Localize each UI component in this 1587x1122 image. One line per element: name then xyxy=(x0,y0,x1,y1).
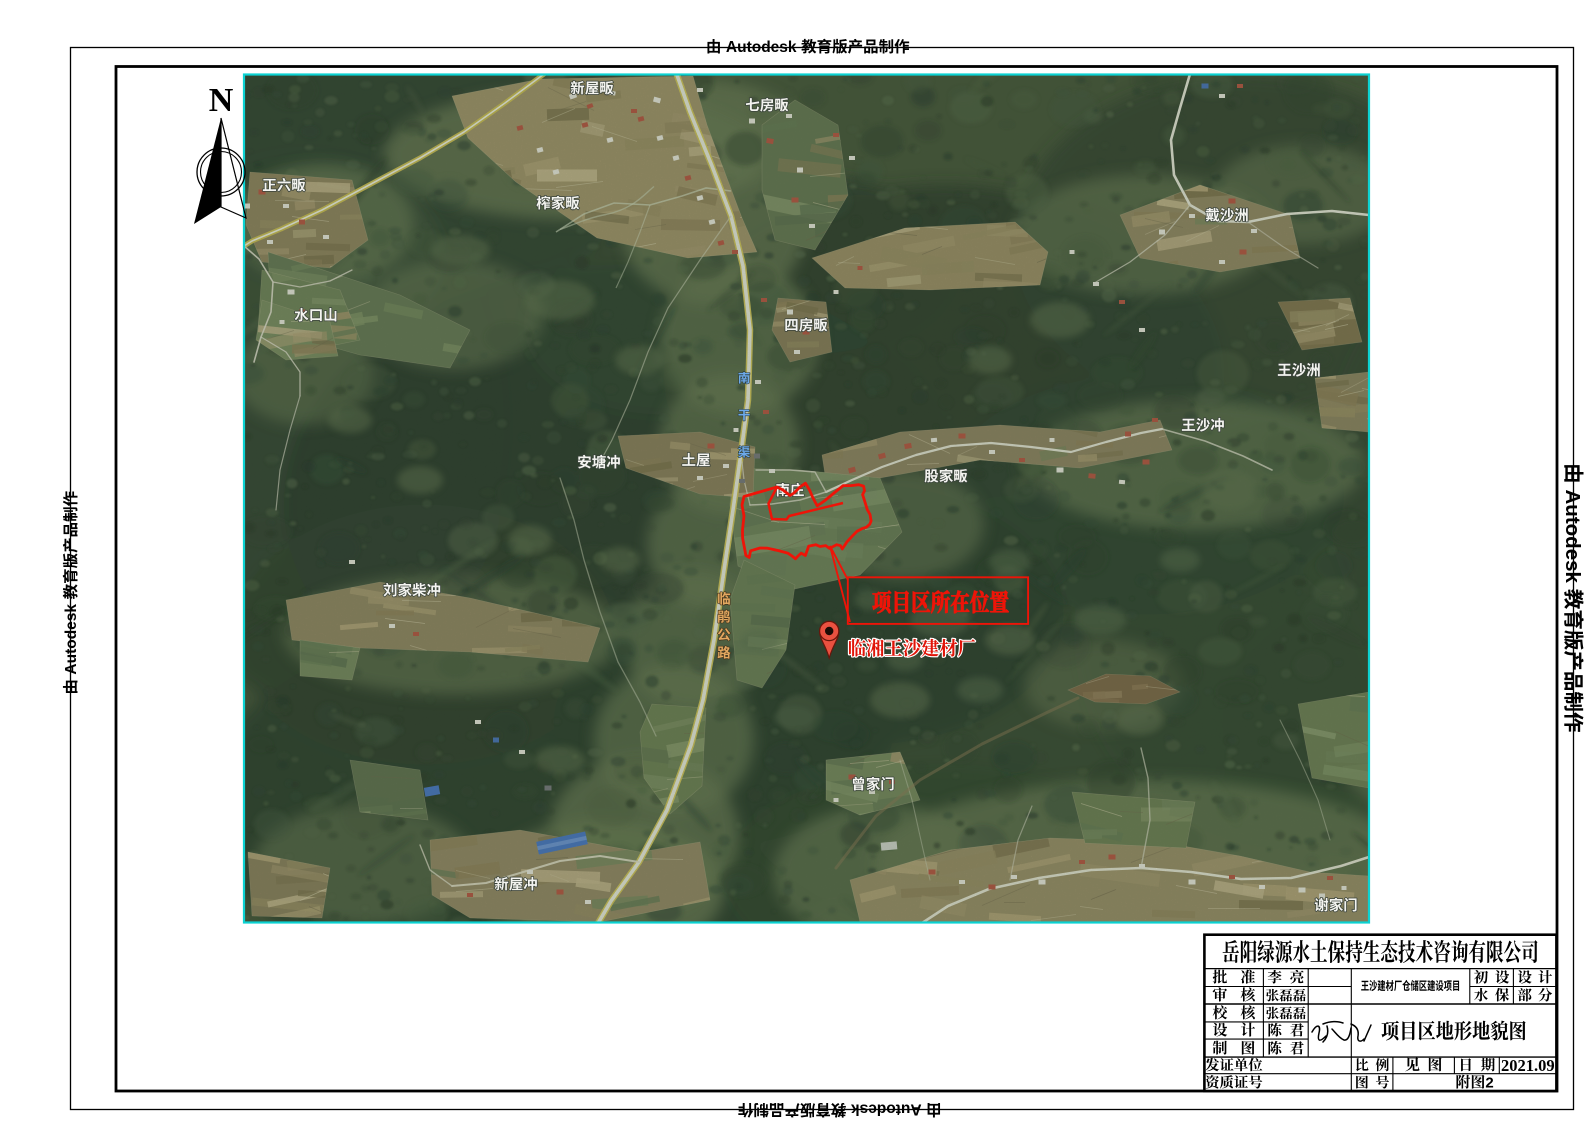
svg-text:2021.09: 2021.09 xyxy=(1501,1056,1555,1075)
svg-text:Autodesk: Autodesk xyxy=(63,604,80,675)
svg-text:Autodesk: Autodesk xyxy=(726,39,797,56)
svg-text:N: N xyxy=(209,82,234,119)
svg-text:Autodesk: Autodesk xyxy=(1561,490,1584,584)
svg-text:2: 2 xyxy=(1485,1074,1493,1091)
svg-text:Autodesk: Autodesk xyxy=(851,1100,922,1117)
